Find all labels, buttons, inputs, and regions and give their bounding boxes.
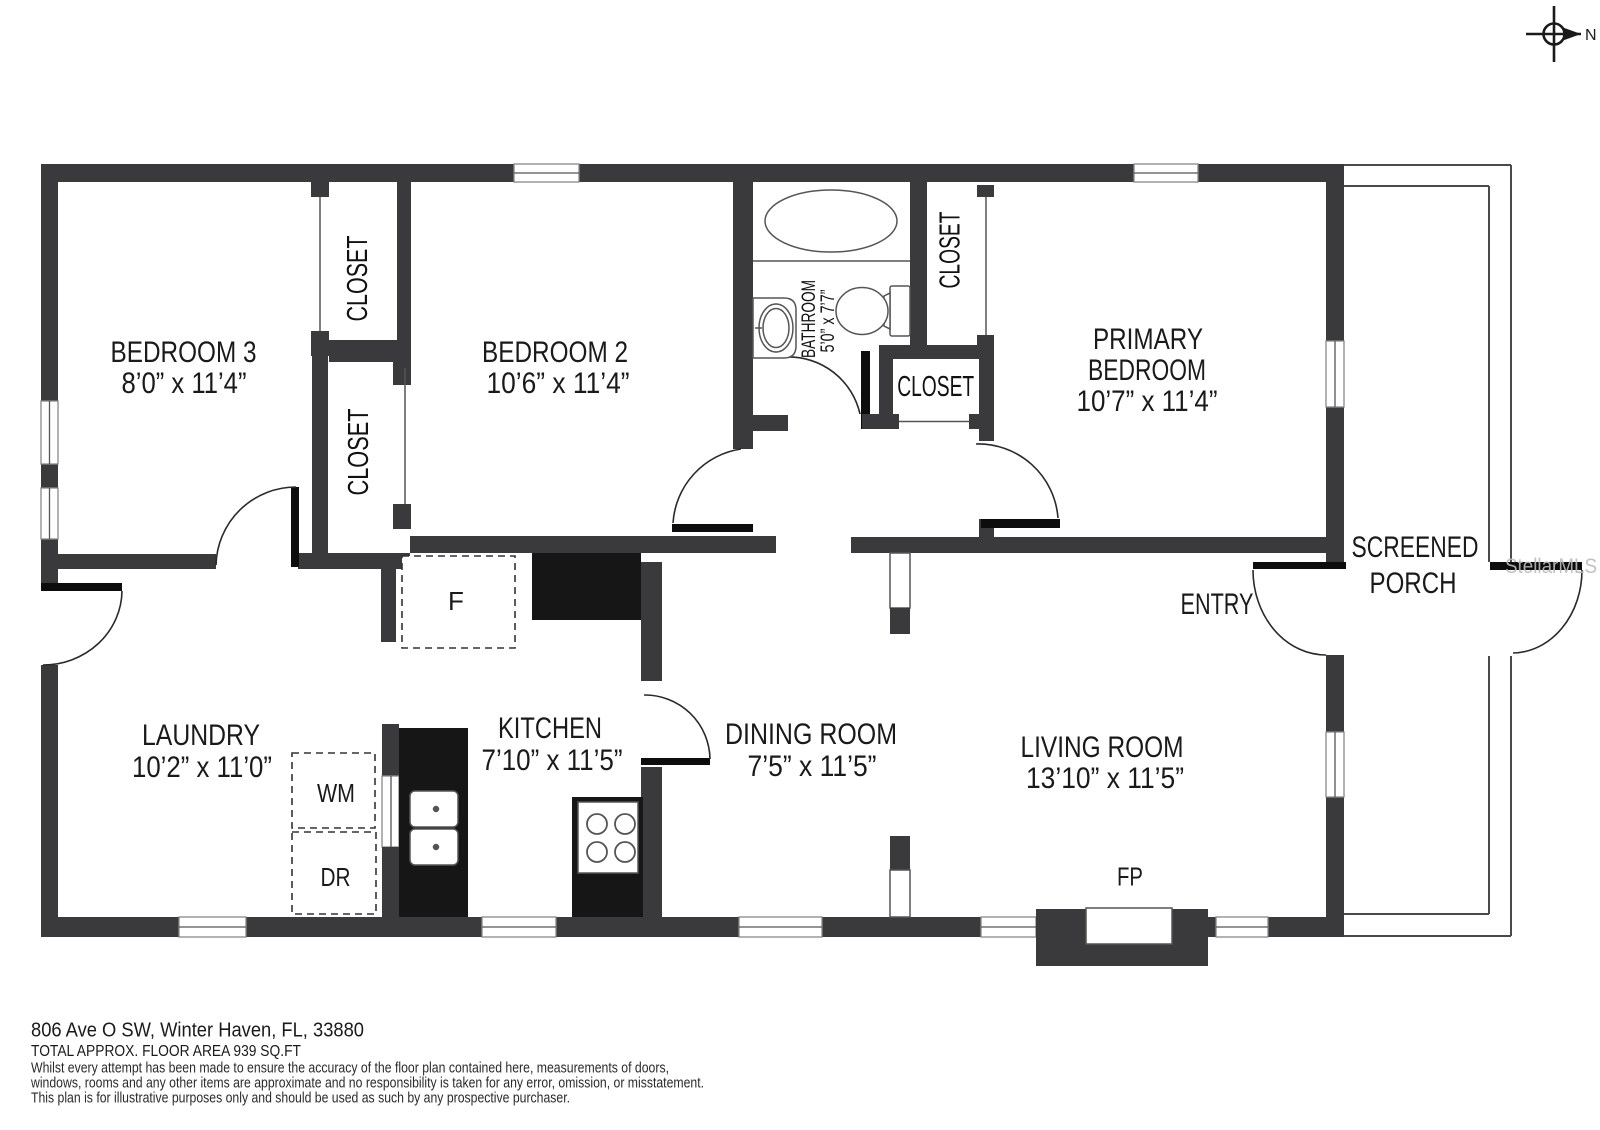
svg-text:7’5” x 11’5”: 7’5” x 11’5” bbox=[748, 750, 877, 783]
svg-text:PRIMARY: PRIMARY bbox=[1093, 323, 1203, 356]
svg-text:PORCH: PORCH bbox=[1370, 567, 1457, 600]
svg-text:N: N bbox=[1585, 27, 1597, 44]
svg-text:KITCHEN: KITCHEN bbox=[498, 712, 602, 745]
svg-text:7’10” x 11’5”: 7’10” x 11’5” bbox=[482, 744, 623, 777]
svg-text:BEDROOM 2: BEDROOM 2 bbox=[482, 336, 628, 369]
svg-text:WM: WM bbox=[317, 778, 355, 808]
svg-text:This plan is for illustrative: This plan is for illustrative purposes o… bbox=[31, 1091, 570, 1107]
svg-text:StellarMLS: StellarMLS bbox=[1505, 555, 1597, 578]
svg-text:ENTRY: ENTRY bbox=[1181, 588, 1254, 621]
svg-text:windows, rooms and any other i: windows, rooms and any other items are a… bbox=[30, 1076, 704, 1092]
svg-text:8’0” x 11’4”: 8’0” x 11’4” bbox=[122, 367, 247, 400]
svg-text:BEDROOM: BEDROOM bbox=[1088, 354, 1206, 387]
svg-text:806 Ave O SW, Winter Haven, FL: 806 Ave O SW, Winter Haven, FL, 33880 bbox=[31, 1020, 364, 1042]
svg-text:10’6” x 11’4”: 10’6” x 11’4” bbox=[487, 367, 630, 400]
svg-text:CLOSET: CLOSET bbox=[935, 211, 967, 288]
svg-text:SCREENED: SCREENED bbox=[1352, 531, 1479, 564]
svg-text:FP: FP bbox=[1117, 862, 1143, 892]
svg-text:10’7” x 11’4”: 10’7” x 11’4” bbox=[1077, 385, 1218, 418]
svg-text:13’10” x 11’5”: 13’10” x 11’5” bbox=[1026, 762, 1184, 795]
svg-text:LIVING ROOM: LIVING ROOM bbox=[1021, 731, 1184, 764]
svg-text:CLOSET: CLOSET bbox=[343, 408, 375, 495]
svg-text:F: F bbox=[448, 586, 464, 616]
svg-text:10’2” x 11’0”: 10’2” x 11’0” bbox=[132, 751, 272, 784]
svg-text:BEDROOM 3: BEDROOM 3 bbox=[111, 336, 257, 369]
svg-text:DINING ROOM: DINING ROOM bbox=[725, 718, 897, 751]
svg-text:LAUNDRY: LAUNDRY bbox=[142, 719, 260, 752]
svg-text:TOTAL APPROX. FLOOR AREA 939 S: TOTAL APPROX. FLOOR AREA 939 SQ.FT bbox=[31, 1043, 301, 1060]
svg-text:Whilst every attempt has been: Whilst every attempt has been made to en… bbox=[31, 1061, 669, 1077]
svg-text:CLOSET: CLOSET bbox=[897, 371, 974, 403]
svg-text:BATHROOM: BATHROOM bbox=[799, 280, 820, 358]
svg-text:CLOSET: CLOSET bbox=[342, 235, 374, 321]
svg-text:5’0” x 7’7”: 5’0” x 7’7” bbox=[818, 290, 839, 353]
svg-text:DR: DR bbox=[321, 862, 351, 892]
